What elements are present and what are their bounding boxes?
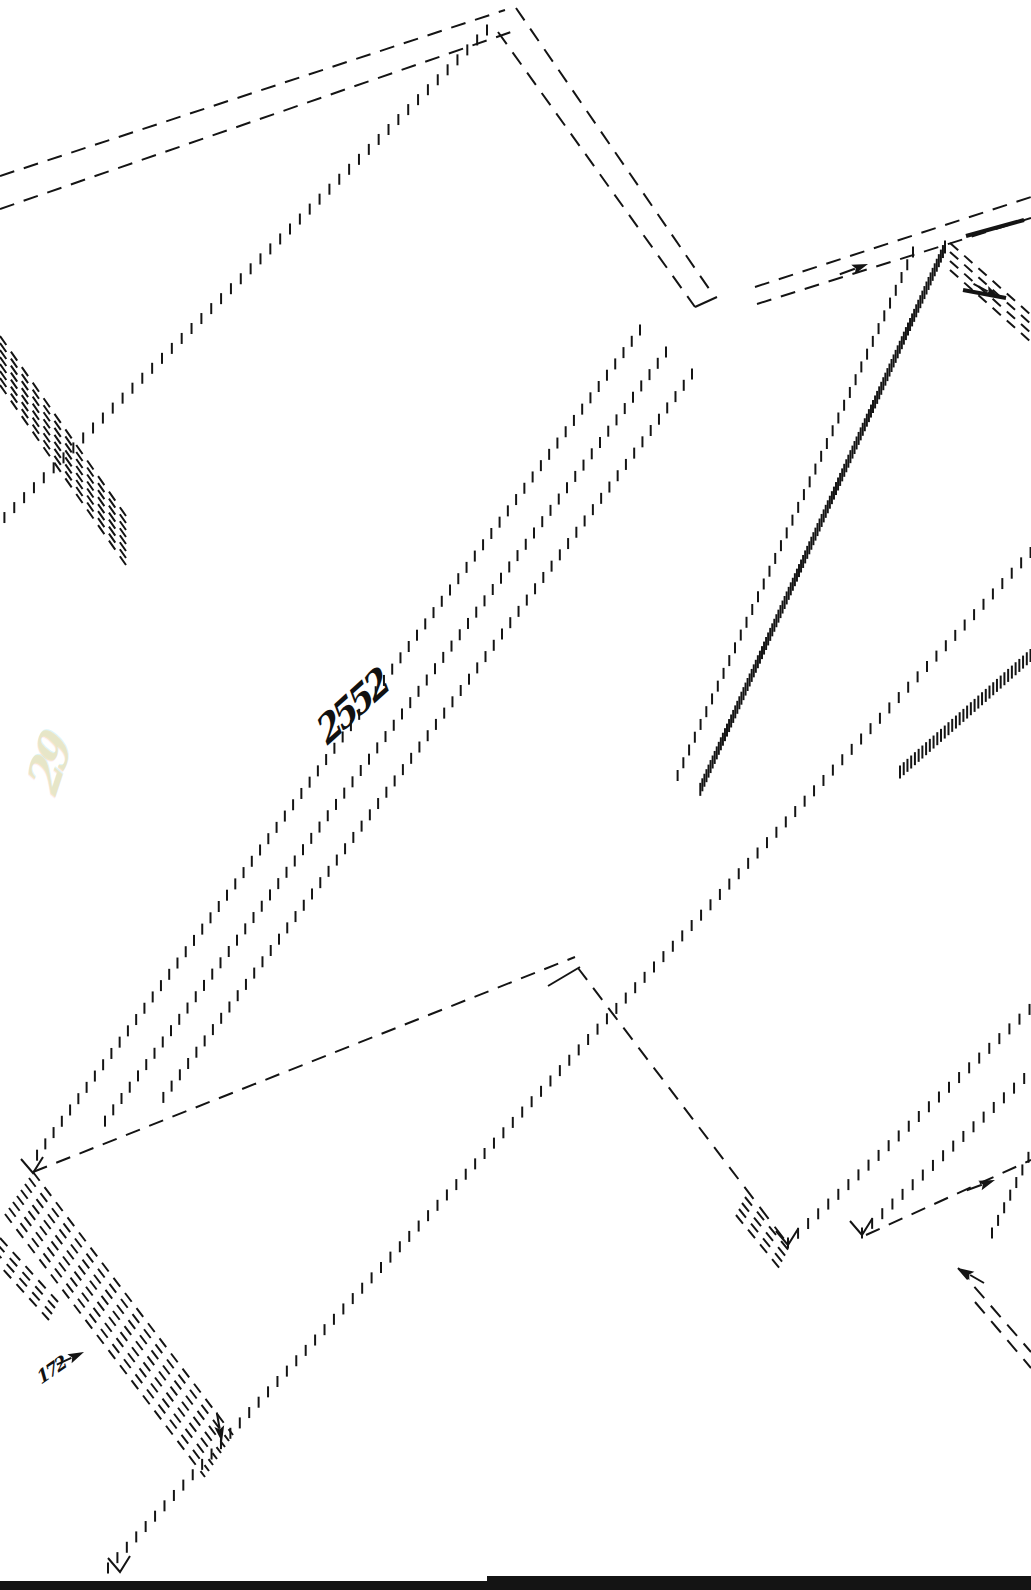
line-drawing-svg (0, 0, 1031, 1590)
cad-drawing-canvas: 2552 29 172 (0, 0, 1031, 1590)
